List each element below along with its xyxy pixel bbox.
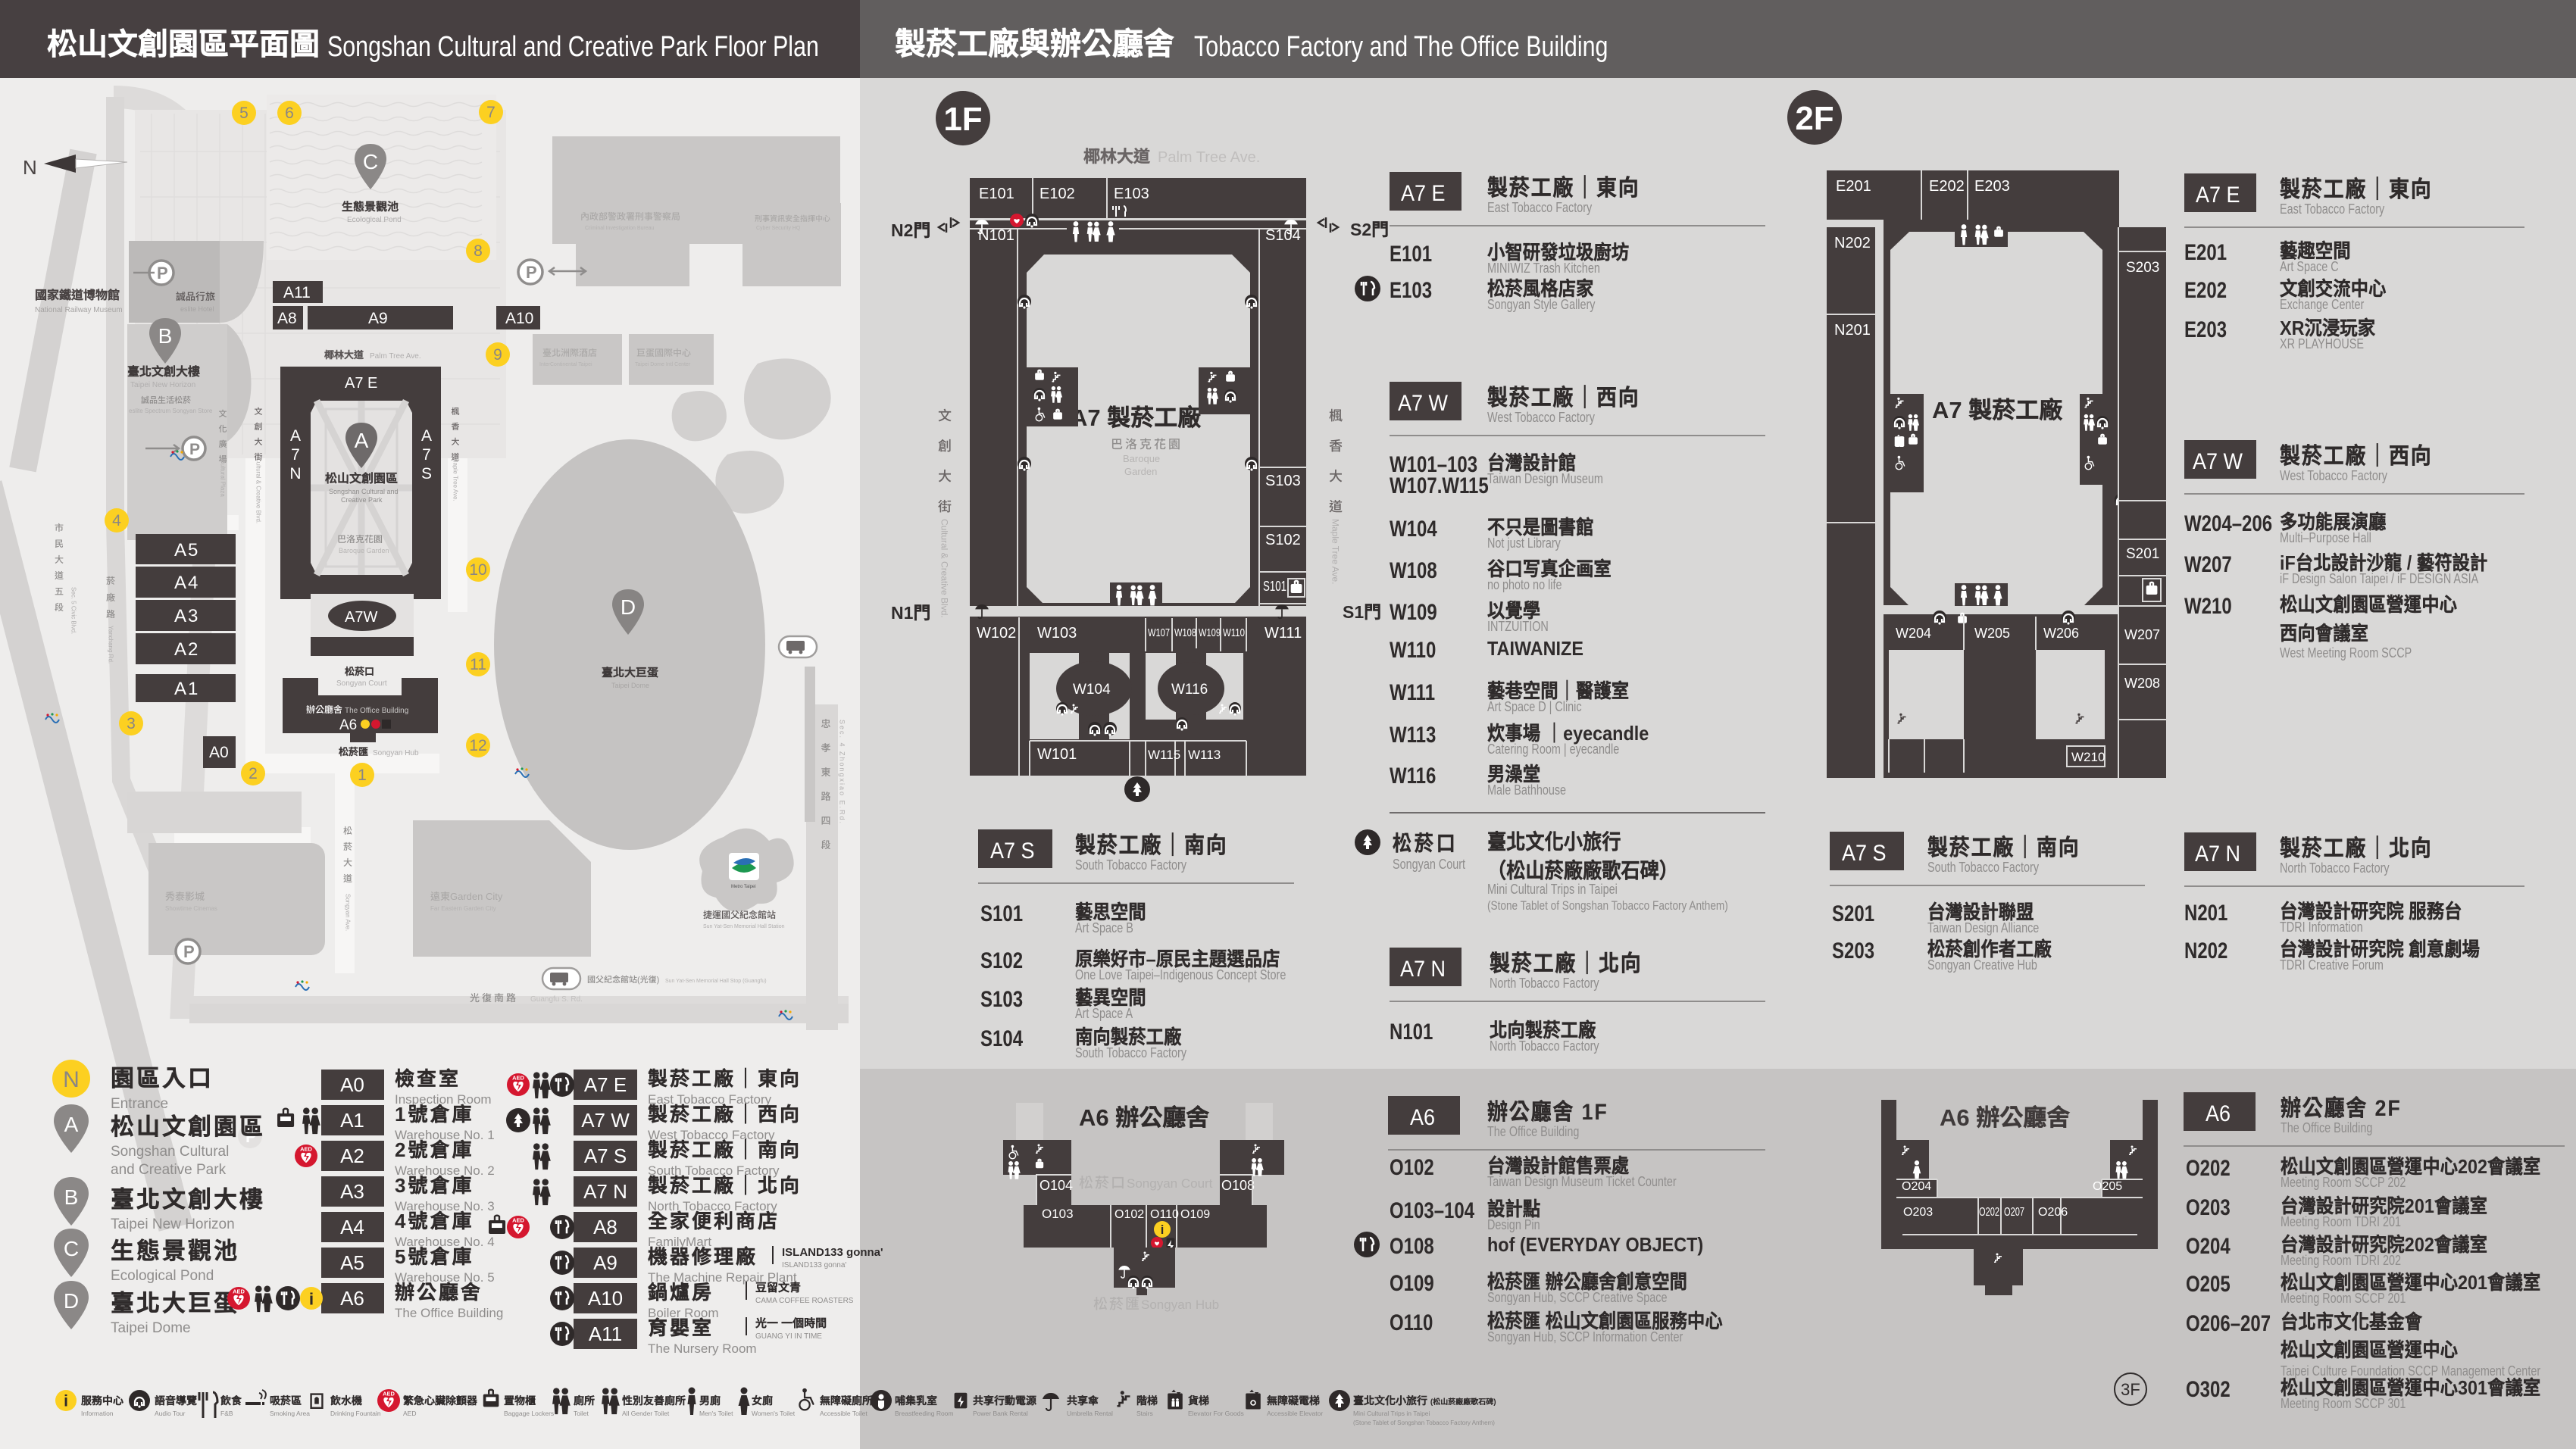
- svg-text:O202: O202: [1979, 1201, 1999, 1219]
- svg-text:A6 辦公廳舍: A6 辦公廳舍: [1079, 1098, 1210, 1132]
- svg-text:O109: O109: [1180, 1204, 1210, 1222]
- svg-text:Songyan Hub: Songyan Hub: [1141, 1294, 1219, 1313]
- svg-text:O103: O103: [1042, 1203, 1074, 1222]
- svg-text:O204: O204: [1902, 1176, 1931, 1194]
- svg-text:O104: O104: [1039, 1175, 1073, 1194]
- svg-text:3F: 3F: [2121, 1376, 2140, 1401]
- svg-text:O102: O102: [1114, 1204, 1144, 1222]
- svg-text:O203: O203: [1903, 1201, 1933, 1219]
- svg-text:O207: O207: [2004, 1201, 2024, 1219]
- svg-text:O108: O108: [1221, 1175, 1255, 1194]
- svg-text:i: i: [1161, 1219, 1165, 1238]
- svg-text:松菸口: 松菸口: [1079, 1172, 1127, 1192]
- svg-text:O206: O206: [2038, 1201, 2068, 1219]
- svg-text:A6 辦公廳舍: A6 辦公廳舍: [1940, 1098, 2071, 1132]
- svg-text:O110: O110: [1150, 1204, 1179, 1222]
- svg-text:松菸匯: 松菸匯: [1093, 1293, 1141, 1313]
- svg-text:Songyan Court: Songyan Court: [1127, 1173, 1213, 1191]
- svg-text:O205: O205: [2093, 1176, 2122, 1194]
